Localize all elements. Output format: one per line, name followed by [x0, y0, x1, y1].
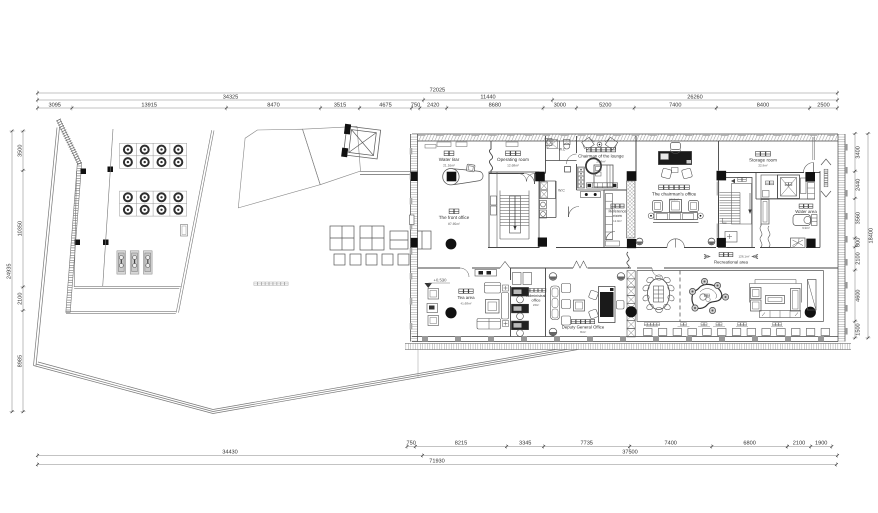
svg-text:Water area: Water area [795, 209, 817, 214]
svg-text:10350: 10350 [17, 221, 23, 237]
svg-text:13915: 13915 [141, 103, 157, 109]
svg-text:3560: 3560 [855, 212, 861, 224]
svg-text:12.68m²: 12.68m² [507, 164, 519, 168]
svg-text:5200: 5200 [599, 103, 611, 109]
svg-text:Water Bar: Water Bar [439, 157, 460, 162]
svg-text:750: 750 [411, 103, 420, 109]
svg-text:Tea area: Tea area [457, 295, 475, 300]
svg-text:23m²: 23m² [533, 303, 539, 307]
svg-text:W.C: W.C [558, 189, 565, 193]
svg-text:800: 800 [855, 238, 861, 247]
svg-text:34430: 34430 [222, 450, 238, 456]
svg-text:The front office: The front office [439, 215, 470, 220]
svg-text:8470: 8470 [267, 103, 279, 109]
svg-text:3400: 3400 [856, 146, 862, 158]
svg-text:room: room [613, 213, 622, 218]
svg-text:11440: 11440 [480, 95, 495, 101]
svg-text:2420: 2420 [427, 103, 439, 109]
svg-text:Storage room: Storage room [749, 158, 777, 163]
svg-text:3500: 3500 [18, 144, 24, 156]
svg-text:1500: 1500 [855, 323, 861, 335]
svg-text:Administrat: Administrat [527, 294, 547, 298]
svg-text:24935: 24935 [7, 264, 13, 280]
svg-text:22.9m²: 22.9m² [758, 164, 767, 168]
svg-text:Operating room: Operating room [497, 157, 529, 162]
svg-text:7735: 7735 [580, 441, 592, 447]
svg-text:3515: 3515 [334, 103, 346, 109]
svg-text:Recreational area: Recreational area [714, 260, 749, 265]
svg-text:The chairman's office: The chairman's office [652, 192, 697, 197]
svg-text:12.9m²: 12.9m² [613, 219, 622, 223]
svg-text:7400: 7400 [664, 441, 676, 447]
svg-text:8680: 8680 [489, 103, 501, 109]
svg-text:2500: 2500 [817, 103, 829, 109]
svg-text:3345: 3345 [519, 441, 531, 447]
svg-text:18400: 18400 [869, 228, 875, 244]
svg-text:6800: 6800 [743, 441, 755, 447]
svg-text:3000: 3000 [554, 103, 566, 109]
svg-text:126.1m²: 126.1m² [738, 255, 749, 259]
svg-text:4600: 4600 [856, 289, 862, 301]
svg-text:750: 750 [407, 441, 416, 447]
svg-text:4675: 4675 [379, 103, 391, 109]
svg-text:9.9m²: 9.9m² [802, 226, 810, 230]
svg-text:2100: 2100 [856, 252, 862, 264]
svg-text:W.C: W.C [559, 148, 566, 152]
svg-text:35m²: 35m² [580, 330, 586, 334]
svg-text:2440: 2440 [855, 179, 861, 191]
svg-text:34325: 34325 [223, 95, 239, 101]
svg-text:2100: 2100 [18, 292, 24, 304]
svg-text:87.35m²: 87.35m² [448, 222, 460, 226]
svg-text:office: office [531, 299, 540, 303]
svg-text:37500: 37500 [622, 450, 638, 456]
svg-text:8985: 8985 [18, 355, 24, 367]
svg-text:26260: 26260 [687, 95, 703, 101]
svg-text:71930: 71930 [429, 459, 445, 465]
svg-text:8400: 8400 [757, 103, 769, 109]
svg-text:2100: 2100 [793, 441, 805, 447]
svg-text:72025: 72025 [430, 88, 446, 94]
svg-text:41.68m²: 41.68m² [460, 302, 471, 306]
svg-text:8215: 8215 [455, 441, 467, 447]
svg-text:21.16m²: 21.16m² [443, 164, 455, 168]
svg-text:Chairman of the lounge: Chairman of the lounge [578, 154, 624, 159]
svg-text:+0.530: +0.530 [434, 278, 448, 283]
svg-text:1900: 1900 [815, 441, 827, 447]
svg-text:7400: 7400 [669, 103, 681, 109]
svg-text:3095: 3095 [48, 103, 60, 109]
